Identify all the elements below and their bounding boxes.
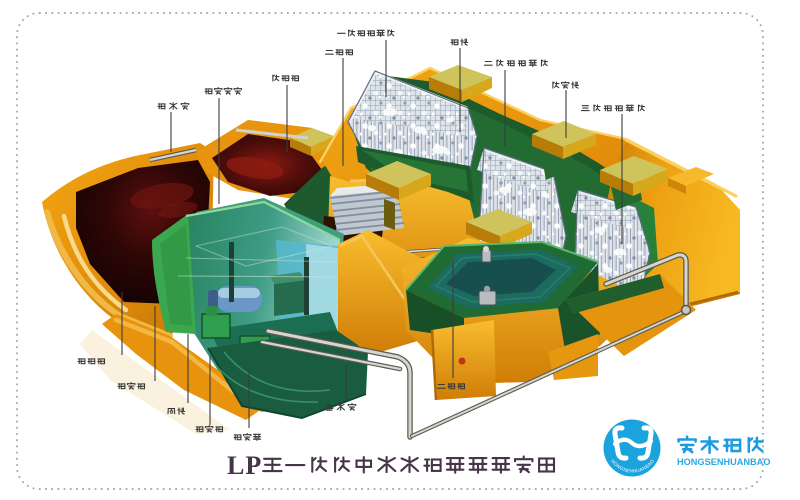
svg-text:LP: LP	[227, 451, 262, 480]
svg-text:HONGSENHUANBAO: HONGSENHUANBAO	[677, 457, 770, 467]
